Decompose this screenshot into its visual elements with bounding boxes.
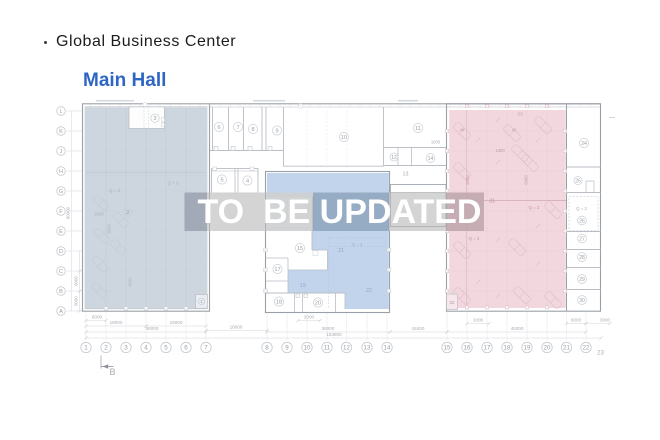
svg-text:12: 12 (343, 345, 350, 352)
svg-text:Q + 3: Q + 3 (168, 181, 179, 186)
svg-text:6000: 6000 (74, 276, 79, 286)
svg-text:18: 18 (504, 345, 511, 352)
svg-text:E: E (59, 229, 63, 235)
svg-text:32: 32 (449, 300, 455, 305)
svg-text:6000: 6000 (107, 224, 112, 234)
svg-text:26: 26 (579, 218, 585, 224)
svg-text:16: 16 (464, 345, 471, 352)
svg-text:20: 20 (544, 345, 551, 352)
svg-text:J: J (60, 149, 63, 155)
svg-text:Q = 3: Q = 3 (469, 236, 480, 241)
svg-text:36000: 36000 (146, 326, 159, 331)
svg-text:2: 2 (127, 210, 130, 216)
svg-text:23: 23 (517, 112, 523, 118)
svg-text:10: 10 (341, 135, 347, 141)
svg-text:60000: 60000 (66, 206, 71, 219)
svg-text:10: 10 (304, 345, 311, 352)
svg-text:4: 4 (144, 345, 148, 352)
svg-text:1300: 1300 (495, 148, 505, 153)
svg-text:36000: 36000 (322, 326, 335, 331)
svg-text:18400: 18400 (412, 326, 425, 331)
svg-text:12: 12 (391, 155, 397, 161)
svg-text:14: 14 (428, 156, 434, 162)
svg-text:45: 45 (512, 128, 516, 132)
svg-text:9: 9 (275, 129, 278, 135)
svg-text:Q = 3: Q = 3 (109, 188, 120, 193)
svg-text:6000: 6000 (128, 277, 133, 287)
svg-text:3000: 3000 (600, 318, 611, 323)
svg-text:1000: 1000 (473, 318, 484, 323)
svg-text:2000: 2000 (94, 212, 104, 217)
svg-text:6000: 6000 (92, 315, 103, 320)
svg-text:8: 8 (265, 345, 269, 352)
svg-text:8: 8 (251, 127, 254, 133)
svg-text:18000: 18000 (170, 320, 183, 325)
svg-text:21: 21 (338, 248, 344, 254)
svg-text:H: H (59, 169, 63, 175)
svg-text:27: 27 (579, 236, 585, 242)
svg-text:TO BE UPDATED: TO BE UPDATED (198, 193, 482, 231)
svg-text:11: 11 (324, 345, 331, 352)
svg-text:20: 20 (315, 301, 321, 307)
svg-text:23: 23 (597, 350, 604, 357)
svg-text:19: 19 (300, 283, 306, 289)
svg-text:2000: 2000 (304, 315, 315, 320)
svg-text:18: 18 (276, 300, 282, 306)
svg-text:6000: 6000 (74, 296, 79, 306)
svg-text:19: 19 (524, 345, 531, 352)
svg-text:13: 13 (364, 345, 371, 352)
svg-text:K: K (59, 129, 63, 135)
svg-text:Q = 3: Q = 3 (352, 242, 363, 247)
svg-text:29: 29 (579, 277, 585, 283)
svg-text:6000: 6000 (524, 175, 529, 185)
svg-text:14: 14 (384, 345, 391, 352)
svg-text:15: 15 (297, 246, 303, 252)
svg-text:7: 7 (204, 345, 208, 352)
svg-text:9: 9 (285, 345, 289, 352)
svg-text:24: 24 (581, 141, 587, 147)
svg-text:22: 22 (583, 345, 590, 352)
svg-text:5: 5 (164, 345, 168, 352)
svg-text:1000: 1000 (431, 140, 441, 145)
svg-text:17: 17 (484, 345, 491, 352)
svg-text:45000: 45000 (511, 326, 524, 331)
svg-text:6: 6 (184, 345, 188, 352)
svg-text:31: 31 (489, 199, 495, 205)
svg-text:1: 1 (84, 345, 88, 352)
svg-text:4: 4 (246, 179, 249, 185)
svg-text:30: 30 (579, 298, 585, 304)
svg-text:F: F (59, 209, 63, 215)
svg-text:45: 45 (460, 128, 464, 132)
svg-text:21: 21 (563, 345, 570, 352)
svg-text:3: 3 (154, 116, 157, 122)
svg-text:17: 17 (274, 267, 280, 273)
svg-text:6000: 6000 (465, 175, 470, 185)
svg-text:6000: 6000 (571, 318, 582, 323)
svg-text:3: 3 (124, 345, 128, 352)
svg-text:5: 5 (220, 178, 223, 184)
svg-text:B: B (110, 367, 116, 377)
svg-text:25: 25 (575, 178, 581, 184)
svg-text:7: 7 (236, 125, 239, 131)
svg-text:15: 15 (444, 345, 451, 352)
svg-text:6: 6 (217, 125, 220, 131)
svg-text:13: 13 (403, 172, 409, 178)
svg-text:D: D (59, 249, 63, 255)
svg-text:Q = 3: Q = 3 (529, 205, 540, 210)
svg-text:28: 28 (579, 255, 585, 261)
svg-text:153800: 153800 (326, 332, 342, 337)
svg-text:22: 22 (366, 288, 372, 294)
svg-text:G: G (59, 189, 63, 195)
svg-text:L: L (59, 109, 62, 115)
svg-text:C: C (59, 269, 63, 275)
svg-text:18000: 18000 (110, 320, 123, 325)
svg-text:A: A (59, 309, 63, 315)
svg-text:B: B (59, 289, 63, 295)
svg-text:11: 11 (415, 126, 421, 132)
svg-text:2: 2 (104, 345, 108, 352)
svg-text:18000: 18000 (230, 325, 243, 330)
svg-text:Q = 3: Q = 3 (576, 206, 587, 211)
